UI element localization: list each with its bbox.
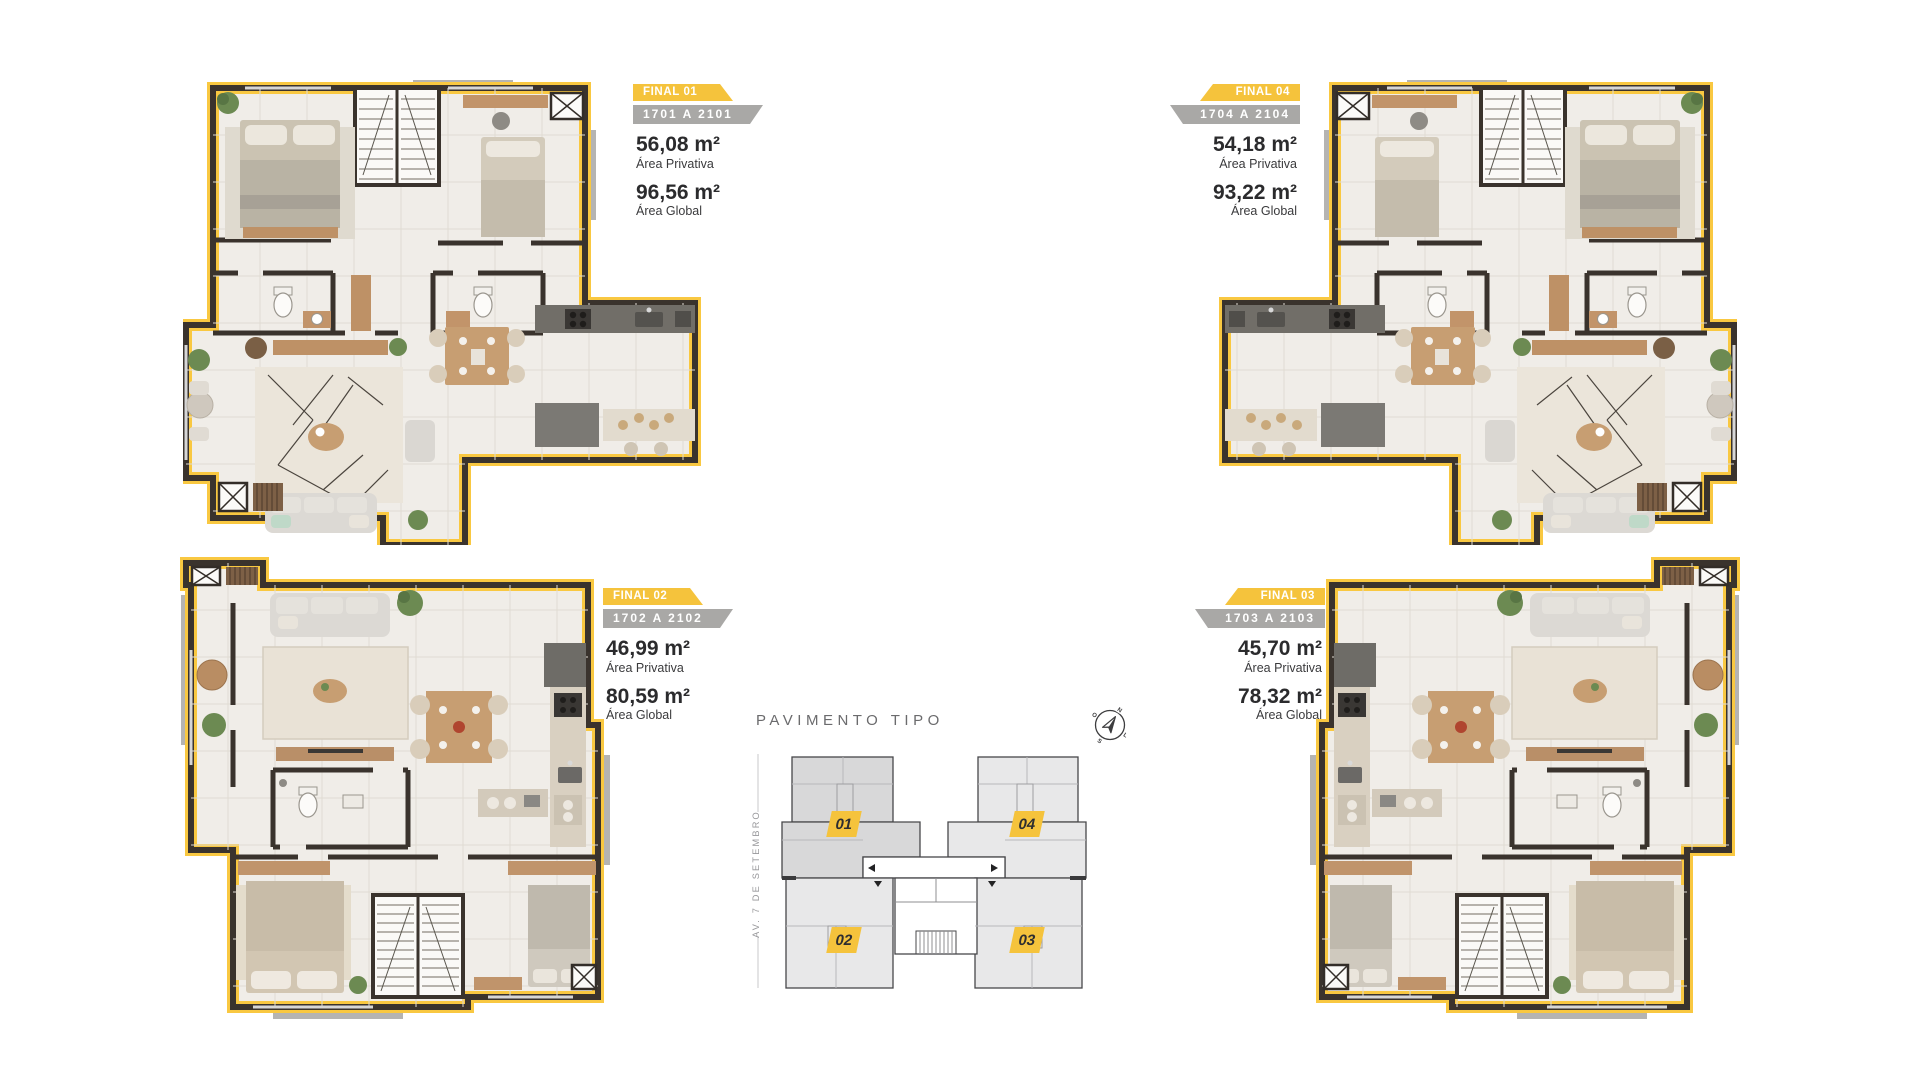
final-banner: FINAL 01: [633, 84, 733, 101]
toilet: [1603, 787, 1621, 817]
global-area-caption: Área Global: [633, 204, 873, 219]
desk-chair: [492, 112, 510, 130]
key-plan: AV. 7 DE SETEMBRO: [740, 688, 1140, 1000]
tv-sideboard: [1526, 747, 1644, 761]
armchair: [405, 420, 435, 462]
elevator-icon: [551, 93, 583, 119]
bath-vanity: [446, 311, 470, 327]
kitchen-counter: [1225, 305, 1385, 333]
sofa: [270, 593, 390, 637]
bed-double: [246, 881, 344, 993]
sink: [1598, 314, 1609, 325]
coffee-table: [1576, 423, 1612, 451]
private-area-value: 45,70 m²: [1085, 637, 1325, 661]
coffee-table: [1573, 679, 1607, 703]
coffee-table: [313, 679, 347, 703]
kitchen-counter: [1334, 643, 1376, 847]
kitchen-counter: [535, 305, 695, 333]
sink: [312, 314, 323, 325]
private-area-value: 56,08 m²: [633, 133, 873, 157]
stairs-icon: [355, 88, 439, 185]
stairs-icon: [1457, 895, 1547, 997]
final-banner: FINAL 04: [1200, 84, 1300, 101]
private-area-caption: Área Privativa: [633, 157, 873, 172]
private-area-value: 46,99 m²: [603, 637, 843, 661]
table-deco: [1596, 428, 1605, 437]
desk: [1372, 95, 1457, 108]
coffee-table: [308, 423, 344, 451]
sink: [1557, 795, 1577, 808]
wardrobe: [1324, 861, 1412, 875]
kitchen-peninsula: [478, 789, 548, 817]
key-plan-unit-badge-04: 04: [1009, 811, 1045, 837]
plant-icon: [1553, 976, 1571, 994]
wall-notch: [782, 876, 796, 880]
toilet: [1428, 287, 1446, 317]
stairs-icon: [373, 895, 463, 997]
plant-icon: [397, 590, 423, 616]
dresser: [243, 227, 338, 238]
elevator-icon: [192, 567, 220, 585]
elevator-icon: [1700, 567, 1728, 585]
elevator-icon: [1324, 965, 1348, 989]
sofa: [1530, 593, 1650, 637]
shower-head: [279, 779, 287, 787]
range-banner: 1703 A 2103: [1195, 609, 1325, 628]
wall-notch: [1070, 876, 1086, 880]
floor-plan-final-03: [1287, 555, 1742, 1025]
plant-icon: [217, 92, 239, 114]
private-area-value: 54,18 m²: [1060, 133, 1300, 157]
kitchen-peninsula: [1372, 789, 1442, 817]
entry-gallery: [863, 857, 1005, 878]
plant-icon: [1681, 92, 1703, 114]
elevator-icon: [1337, 93, 1369, 119]
plant-icon: [1513, 338, 1531, 356]
plant-icon: [389, 338, 407, 356]
bed-single: [481, 137, 545, 237]
table-plant: [321, 683, 329, 691]
tv-sideboard: [276, 747, 394, 761]
shaft-hatch: [253, 483, 283, 511]
elevator-icon: [572, 965, 596, 989]
wardrobe: [508, 861, 596, 875]
compass-east: L: [1122, 732, 1129, 739]
desk: [474, 977, 522, 990]
elevator-icon: [219, 483, 247, 511]
shaft-hatch: [226, 567, 258, 585]
sink: [343, 795, 363, 808]
shaft-hatch: [1662, 567, 1694, 585]
key-plan-unit-badge-03: 03: [1009, 927, 1045, 953]
final-banner: FINAL 03: [1225, 588, 1325, 605]
shaft-hatch: [1637, 483, 1667, 511]
plant-icon: [408, 510, 428, 530]
plant-icon: [349, 976, 367, 994]
toilet: [299, 787, 317, 817]
kitchen-counter: [544, 643, 586, 847]
toilet: [474, 287, 492, 317]
plant-icon: [1492, 510, 1512, 530]
bed-double: [1580, 120, 1680, 228]
plan-label-final-01: FINAL 01 1701 A 2101 56,08 m² Área Priva…: [633, 84, 873, 219]
table-deco: [316, 428, 325, 437]
private-area-caption: Área Privativa: [603, 661, 843, 676]
range-banner: 1701 A 2101: [633, 105, 763, 124]
compass-south: S: [1096, 738, 1103, 745]
global-area-value: 96,56 m²: [633, 181, 873, 205]
building-footprint: [782, 757, 1086, 988]
armchair: [1485, 420, 1515, 462]
pouf: [1653, 337, 1675, 359]
desk-chair: [1410, 112, 1428, 130]
dresser: [1582, 227, 1677, 238]
wardrobe: [1590, 861, 1682, 875]
key-plan-unit-badge-02: 02: [826, 927, 862, 953]
elevator-icon: [1673, 483, 1701, 511]
toilet: [274, 287, 292, 317]
street-reference: AV. 7 DE SETEMBRO: [751, 754, 761, 988]
key-plan-unit-badge-01: 01: [826, 811, 862, 837]
bath-vanity: [1450, 311, 1474, 327]
floor-plan-final-02: [178, 555, 633, 1025]
stairs-icon: [1481, 88, 1565, 185]
final-banner: FINAL 02: [603, 588, 703, 605]
global-area-caption: Área Global: [1060, 204, 1300, 219]
plant-icon: [1497, 590, 1523, 616]
bed-double: [1576, 881, 1674, 993]
desk: [1398, 977, 1446, 990]
range-banner: 1702 A 2102: [603, 609, 733, 628]
wardrobe: [238, 861, 330, 875]
laundry-counter: [351, 275, 371, 331]
compass-north: N: [1116, 707, 1123, 714]
shower-head: [1633, 779, 1641, 787]
bed-single: [1375, 137, 1439, 237]
table-plant: [1591, 683, 1599, 691]
plan-label-final-04: FINAL 04 1704 A 2104 54,18 m² Área Priva…: [1060, 84, 1300, 219]
range-banner: 1704 A 2104: [1170, 105, 1300, 124]
private-area-caption: Área Privativa: [1060, 157, 1300, 172]
street-label: AV. 7 DE SETEMBRO: [751, 810, 761, 938]
toilet: [1628, 287, 1646, 317]
console-table: [273, 340, 388, 355]
desk: [463, 95, 548, 108]
global-area-value: 93,22 m²: [1060, 181, 1300, 205]
bed-double: [240, 120, 340, 228]
compass-icon: N L S O: [1080, 697, 1138, 756]
pouf: [245, 337, 267, 359]
laundry-counter: [1549, 275, 1569, 331]
console-table: [1532, 340, 1647, 355]
private-area-caption: Área Privativa: [1085, 661, 1325, 676]
